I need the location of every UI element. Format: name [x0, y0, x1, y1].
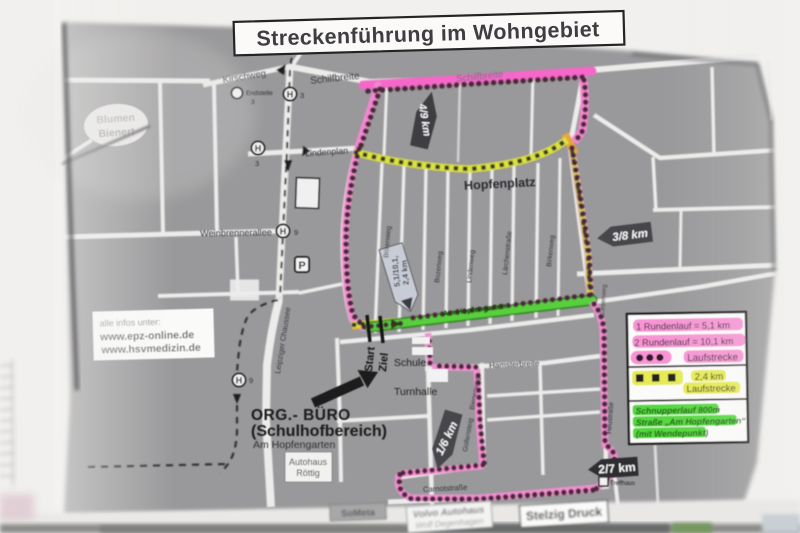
svg-text:H: H	[255, 144, 262, 154]
svg-text:Treffhaus: Treffhaus	[610, 481, 635, 487]
svg-text:9: 9	[249, 376, 253, 385]
svg-text:Weinbrennerallee: Weinbrennerallee	[200, 227, 272, 238]
svg-text:H: H	[236, 376, 243, 386]
svg-text:Autohaus: Autohaus	[289, 457, 328, 467]
svg-text:2/7 km: 2/7 km	[598, 460, 636, 477]
svg-text:Schule: Schule	[394, 357, 426, 369]
svg-text:P: P	[298, 260, 305, 272]
svg-text:(Schulhofbereich): (Schulhofbereich)	[251, 423, 387, 440]
svg-text:ORG.- BÜRO: ORG.- BÜRO	[251, 407, 351, 424]
svg-text:Röttig: Röttig	[296, 468, 320, 478]
svg-text:SoMeta: SoMeta	[341, 507, 376, 519]
svg-text:H: H	[280, 227, 287, 237]
svg-text:3: 3	[300, 91, 304, 100]
svg-text:Ziel: Ziel	[377, 352, 391, 372]
svg-text:H: H	[287, 90, 294, 100]
svg-text:9: 9	[294, 228, 298, 237]
svg-text:3: 3	[255, 159, 259, 168]
svg-text:Am Hopfengarten: Am Hopfengarten	[253, 439, 335, 451]
svg-text:Turnhalle: Turnhalle	[394, 386, 438, 398]
